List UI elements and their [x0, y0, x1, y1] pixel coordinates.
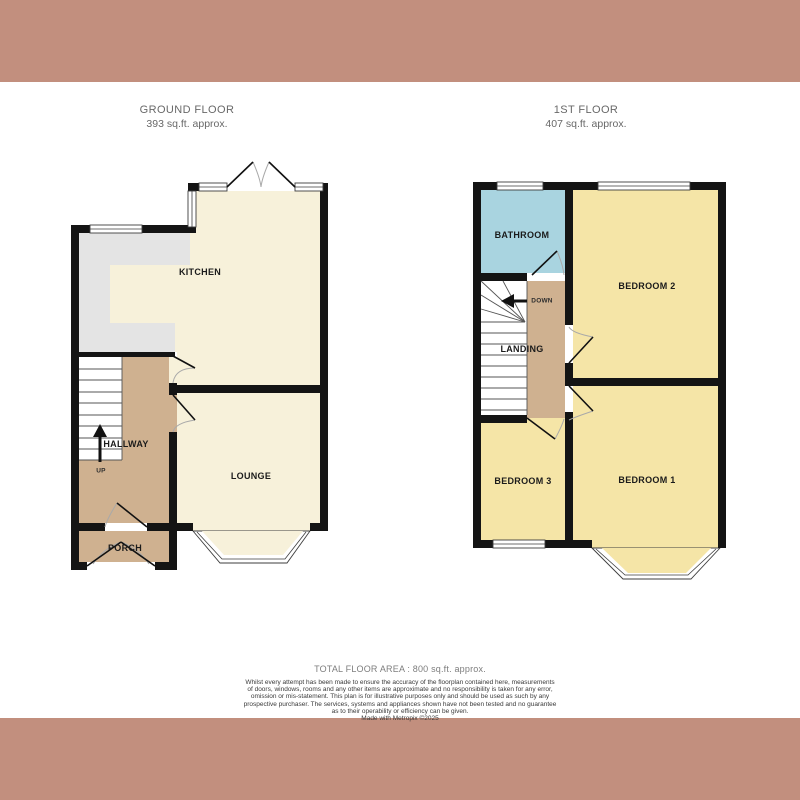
first-floor-title: 1ST FLOOR — [545, 104, 626, 116]
disclaimer-line: as to their operability or efficiency ca… — [332, 708, 469, 715]
total-floor-area: TOTAL FLOOR AREA : 800 sq.ft. approx. — [314, 664, 486, 674]
room-label-kitchen: KITCHEN — [179, 267, 221, 277]
kitchen-doorway-floor — [169, 357, 177, 383]
disclaimer-line: prospective purchaser. The services, sys… — [244, 701, 557, 708]
room-label-hallway: HALLWAY — [103, 439, 148, 449]
credit-line: Made with Metropix ©2025 — [361, 715, 438, 722]
hallway-doorway-floor — [169, 395, 177, 432]
floorplan-canvas: GROUND FLOOR 393 sq.ft. approx. 1ST FLOO… — [0, 0, 800, 800]
room-label-bathroom: BATHROOM — [495, 230, 550, 240]
disclaimer-line: omission or mis-statement. This plan is … — [251, 693, 549, 700]
ground-floor-area: 393 sq.ft. approx. — [140, 118, 235, 130]
lounge-bay-window — [193, 531, 310, 563]
stairs-up-label: UP — [96, 468, 105, 475]
bottom-band — [0, 718, 800, 800]
room-label-bedroom-2: BEDROOM 2 — [618, 281, 675, 291]
room-lounge — [177, 393, 320, 531]
ground-floor-plan — [62, 152, 332, 582]
ground-floor-header: GROUND FLOOR 393 sq.ft. approx. — [140, 104, 235, 130]
ground-floor-title: GROUND FLOOR — [140, 104, 235, 116]
stairs-down-label: DOWN — [531, 298, 552, 305]
room-label-bedroom-3: BEDROOM 3 — [494, 476, 551, 486]
disclaimer-line: of doors, windows, rooms and any other i… — [247, 686, 552, 693]
room-label-porch: PORCH — [108, 543, 142, 553]
room-label-lounge: LOUNGE — [231, 471, 271, 481]
room-bedroom-1 — [573, 386, 718, 548]
bedroom1-bay-window — [592, 548, 720, 579]
room-label-bedroom-1: BEDROOM 1 — [618, 475, 675, 485]
first-floor-area: 407 sq.ft. approx. — [545, 118, 626, 130]
room-label-landing: LANDING — [500, 344, 543, 354]
disclaimer-line: Whilst every attempt has been made to en… — [245, 679, 554, 686]
first-floor-header: 1ST FLOOR 407 sq.ft. approx. — [545, 104, 626, 130]
top-band — [0, 0, 800, 82]
